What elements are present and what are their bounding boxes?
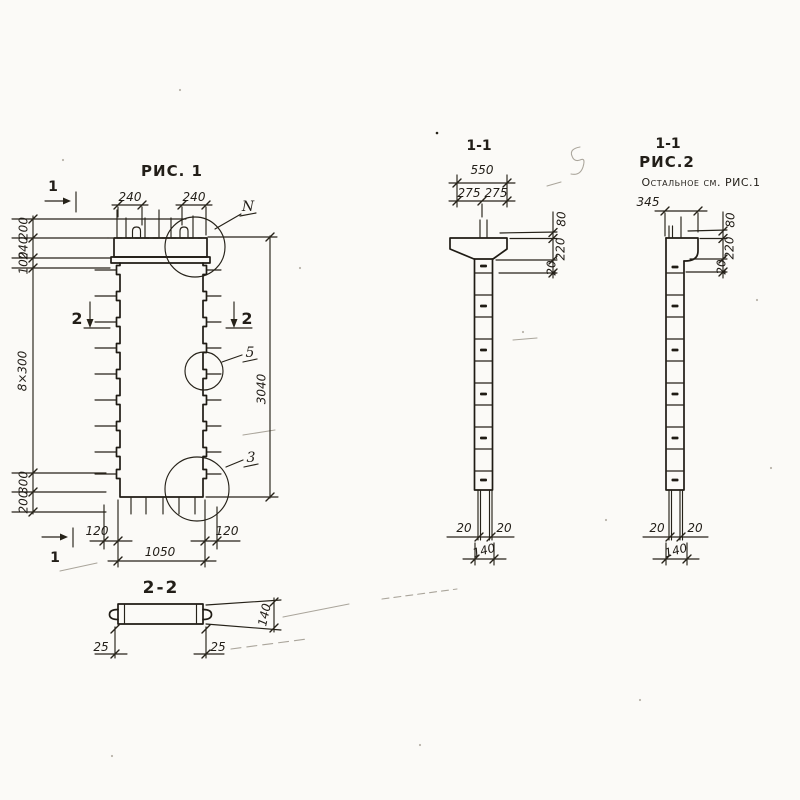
fig2-cap-profile: [666, 238, 698, 261]
section-1-1-body: [450, 220, 507, 540]
marker-2-right-label: 2: [241, 309, 252, 328]
left-end-tab: [110, 610, 119, 620]
fig2-segment-lines: [666, 273, 684, 471]
dim-1050: 1050: [145, 545, 176, 559]
lifting-loops: [133, 227, 189, 238]
pile-cap-profile: [450, 238, 507, 259]
section-2-2-dims: 25 25 140: [93, 598, 281, 658]
right-end-tab: [203, 610, 212, 620]
dim-140-fig2: 140: [663, 541, 689, 561]
dim-3040: 3040: [255, 373, 269, 404]
fig1-top-dimensions: 240 240: [112, 190, 212, 235]
dim-80-fig2: 80: [724, 212, 738, 228]
dim-220-fig2: 220: [723, 236, 737, 259]
fig2-bottom-rods: [669, 490, 683, 540]
dim-300: 300: [17, 471, 31, 494]
bottom-rods: [478, 490, 492, 540]
dim-25-right: 25: [210, 640, 225, 654]
section-1-1-view: 1-1 550 275 275: [447, 138, 569, 565]
cap-pins: [480, 220, 487, 238]
dim-240-top-left: 240: [119, 190, 142, 204]
dim-100: 100: [17, 251, 31, 274]
fig2-body: [666, 217, 698, 540]
fig2-shaft-edges: [666, 238, 684, 490]
dim-220-mid: 220: [554, 237, 568, 260]
dim-200-bottom: 200: [17, 490, 31, 513]
fig1-section-marker-1-bottom: 1: [42, 528, 73, 566]
fig1-section-marker-2-right: 2: [226, 302, 253, 328]
stray-squiggle: [571, 147, 584, 174]
dim-20-rod-left-mid: 20: [456, 521, 472, 535]
fig2-section-title: 1-1: [655, 136, 680, 152]
dim-345: 345: [637, 195, 660, 209]
dim-200-top: 200: [17, 217, 31, 240]
section-1-1-top-dims: 550 275 275: [449, 163, 515, 217]
detail-circle-5: [185, 352, 223, 390]
fig2-title: РИС.2: [639, 153, 695, 171]
technical-drawing: РИС. 1 1 1 2 2: [0, 0, 800, 800]
shaft-edges: [475, 259, 493, 490]
callout-n-label: N: [241, 199, 255, 215]
dim-550: 550: [471, 163, 494, 177]
shaft-segment-lines: [475, 273, 493, 471]
callout-5-label: 5: [246, 345, 255, 361]
dim-275-right: 275: [485, 186, 508, 200]
bottom-rebar-stubs: [131, 497, 195, 514]
marker-2-left-label: 2: [71, 309, 82, 328]
section-2-2-body: [110, 604, 212, 624]
fig1-elevation: РИС. 1 1 1 2 2: [12, 162, 278, 567]
dim-25-left: 25: [93, 640, 108, 654]
shear-key-ticks: [95, 270, 221, 474]
dim-20-mid: 20: [545, 260, 559, 276]
dim-120-left: 120: [86, 524, 109, 538]
marker-1-top-label: 1: [48, 179, 58, 195]
key-block-outline: [118, 604, 203, 624]
detail-circle-n: [165, 217, 225, 277]
dim-20-rod-right-mid: 20: [496, 521, 512, 535]
fig2-top-dim: 345: [637, 195, 707, 236]
fig1-callouts: N 5 3: [165, 199, 258, 521]
fig2-note: Остальное см. РИС.1: [642, 176, 761, 189]
section-1-1-title: 1-1: [466, 138, 491, 154]
dim-80-mid: 80: [555, 211, 569, 227]
fig1-section-marker-1-top: 1: [45, 179, 76, 212]
ink-dot: [436, 132, 439, 135]
fig2-view: 1-1 РИС.2 Остальное см. РИС.1 345: [637, 136, 761, 565]
dim-140-sec22: 140: [255, 602, 274, 628]
callout-3-label: 3: [247, 450, 256, 466]
fig2-cap-pins: [669, 217, 681, 238]
fig1-left-dimension-chain: 200 240 100 8×300 300 200: [12, 215, 202, 516]
dim-8x300: 8×300: [16, 350, 30, 391]
dim-20-rod-right-fig2: 20: [687, 521, 703, 535]
fig1-section-marker-2-left: 2: [71, 302, 110, 328]
section-2-2-title: 2-2: [143, 578, 180, 598]
dim-20-rod-left-fig2: 20: [649, 521, 665, 535]
fig2-bottom-dims: 20 20 140: [643, 521, 708, 565]
dim-240-top-right: 240: [183, 190, 206, 204]
marker-1-bottom-label: 1: [50, 550, 60, 566]
scanned-drawing-page: РИС. 1 1 1 2 2: [0, 0, 800, 800]
dim-20-fig2: 20: [715, 259, 729, 275]
fig1-column-body: [95, 210, 221, 514]
fig2-right-dims: 80 220 20: [686, 212, 738, 278]
column-shaft-outline: [117, 263, 207, 497]
detail-circle-3: [165, 457, 229, 521]
dim-120-right: 120: [216, 524, 239, 538]
fig1-title: РИС. 1: [141, 162, 203, 180]
